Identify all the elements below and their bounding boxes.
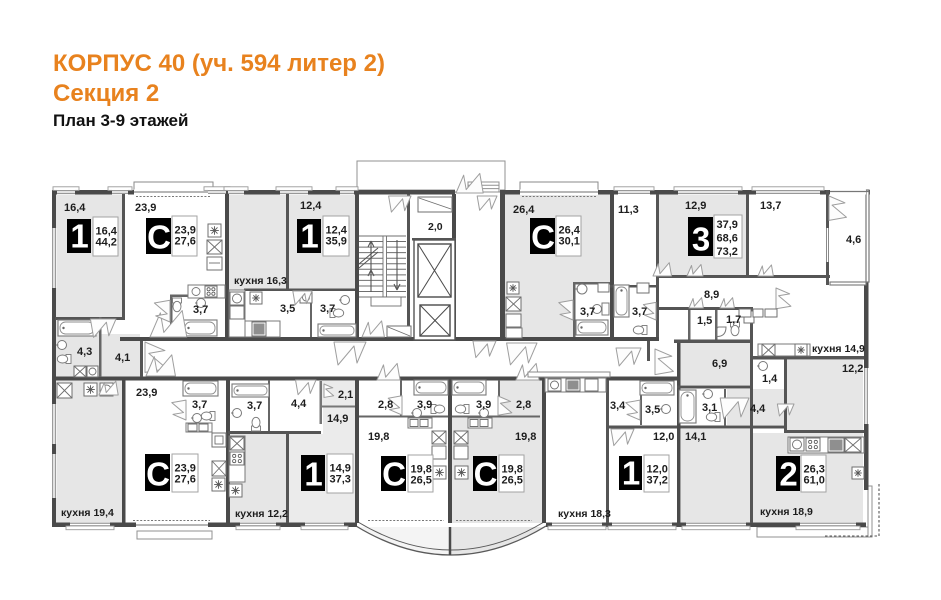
svg-text:23,9: 23,9	[135, 202, 156, 214]
svg-text:27,6: 27,6	[175, 236, 196, 248]
svg-text:1,5: 1,5	[697, 315, 712, 327]
svg-text:3,9: 3,9	[417, 399, 432, 411]
svg-text:73,2: 73,2	[717, 246, 738, 258]
svg-text:12,2: 12,2	[842, 363, 863, 375]
svg-text:12,9: 12,9	[685, 200, 706, 212]
svg-text:С: С	[147, 219, 171, 256]
svg-text:26,4: 26,4	[513, 204, 535, 216]
svg-text:16,4: 16,4	[96, 226, 118, 238]
svg-text:4,4: 4,4	[750, 403, 766, 415]
svg-text:30,1: 30,1	[559, 236, 580, 248]
svg-text:кухня 12,2: кухня 12,2	[235, 508, 288, 520]
svg-text:4,4: 4,4	[291, 398, 307, 410]
svg-text:3,4: 3,4	[610, 400, 626, 412]
svg-text:6,9: 6,9	[712, 358, 727, 370]
svg-text:4,6: 4,6	[846, 234, 861, 246]
svg-text:3,7: 3,7	[320, 303, 335, 315]
svg-text:3,7: 3,7	[247, 400, 262, 412]
svg-text:С: С	[474, 456, 498, 493]
svg-text:61,0: 61,0	[804, 475, 825, 487]
svg-text:37,9: 37,9	[717, 219, 738, 231]
svg-text:37,2: 37,2	[647, 475, 668, 487]
svg-text:3,7: 3,7	[192, 399, 207, 411]
svg-text:1,4: 1,4	[762, 373, 778, 385]
svg-text:26,4: 26,4	[559, 225, 581, 237]
svg-text:23,9: 23,9	[175, 225, 196, 237]
svg-text:19,8: 19,8	[368, 431, 389, 443]
svg-text:44,2: 44,2	[96, 237, 117, 249]
svg-text:1: 1	[300, 218, 318, 255]
svg-text:2: 2	[779, 456, 797, 493]
svg-text:3,5: 3,5	[645, 404, 660, 416]
svg-text:С: С	[382, 456, 406, 493]
svg-text:3: 3	[692, 221, 710, 258]
svg-text:19,8: 19,8	[515, 431, 536, 443]
svg-text:С: С	[146, 456, 170, 493]
svg-text:3,5: 3,5	[280, 303, 295, 315]
svg-text:14,9: 14,9	[330, 463, 351, 475]
svg-text:8,9: 8,9	[704, 289, 719, 301]
svg-text:1: 1	[70, 218, 88, 255]
svg-text:4,3: 4,3	[77, 346, 92, 358]
svg-text:кухня 19,4: кухня 19,4	[61, 507, 114, 519]
svg-text:37,3: 37,3	[330, 474, 351, 486]
svg-text:23,9: 23,9	[136, 387, 157, 399]
svg-text:Секция 2: Секция 2	[53, 80, 159, 107]
svg-text:27,6: 27,6	[175, 474, 196, 486]
svg-text:КОРПУС 40 (уч. 594 литер 2): КОРПУС 40 (уч. 594 литер 2)	[53, 50, 385, 77]
svg-text:кухня 18,9: кухня 18,9	[760, 506, 813, 518]
svg-text:14,9: 14,9	[327, 413, 348, 425]
svg-text:26,3: 26,3	[804, 464, 825, 476]
svg-text:35,9: 35,9	[326, 236, 347, 248]
svg-text:26,5: 26,5	[411, 475, 432, 487]
svg-text:4,1: 4,1	[115, 352, 130, 364]
svg-text:2,8: 2,8	[378, 399, 393, 411]
svg-text:23,9: 23,9	[175, 463, 196, 475]
svg-text:19,8: 19,8	[411, 464, 432, 476]
svg-text:3,7: 3,7	[632, 306, 647, 318]
svg-text:2,0: 2,0	[428, 221, 443, 233]
svg-text:11,3: 11,3	[618, 204, 639, 216]
svg-text:3,9: 3,9	[476, 399, 491, 411]
svg-text:26,5: 26,5	[502, 475, 523, 487]
svg-text:1: 1	[622, 455, 640, 492]
svg-text:С: С	[531, 219, 555, 256]
svg-text:68,6: 68,6	[717, 233, 738, 245]
svg-text:12,4: 12,4	[326, 225, 348, 237]
svg-text:12,0: 12,0	[653, 431, 674, 443]
svg-text:19,8: 19,8	[502, 464, 523, 476]
svg-text:2,1: 2,1	[338, 389, 353, 401]
svg-text:13,7: 13,7	[760, 200, 781, 212]
svg-text:12,0: 12,0	[647, 464, 668, 476]
svg-text:План 3-9 этажей: План 3-9 этажей	[53, 111, 188, 130]
svg-text:2,8: 2,8	[516, 399, 531, 411]
svg-text:1,7: 1,7	[726, 314, 741, 326]
svg-text:3,7: 3,7	[580, 306, 595, 318]
svg-text:кухня 16,3: кухня 16,3	[234, 275, 287, 287]
svg-text:16,4: 16,4	[64, 202, 86, 214]
svg-text:12,4: 12,4	[300, 200, 322, 212]
svg-text:14,1: 14,1	[685, 431, 706, 443]
svg-text:кухня 14,9: кухня 14,9	[812, 343, 865, 355]
svg-text:кухня 18,3: кухня 18,3	[558, 508, 611, 520]
svg-text:1: 1	[304, 456, 322, 493]
svg-text:3,7: 3,7	[193, 304, 208, 316]
svg-text:3,1: 3,1	[702, 402, 717, 414]
